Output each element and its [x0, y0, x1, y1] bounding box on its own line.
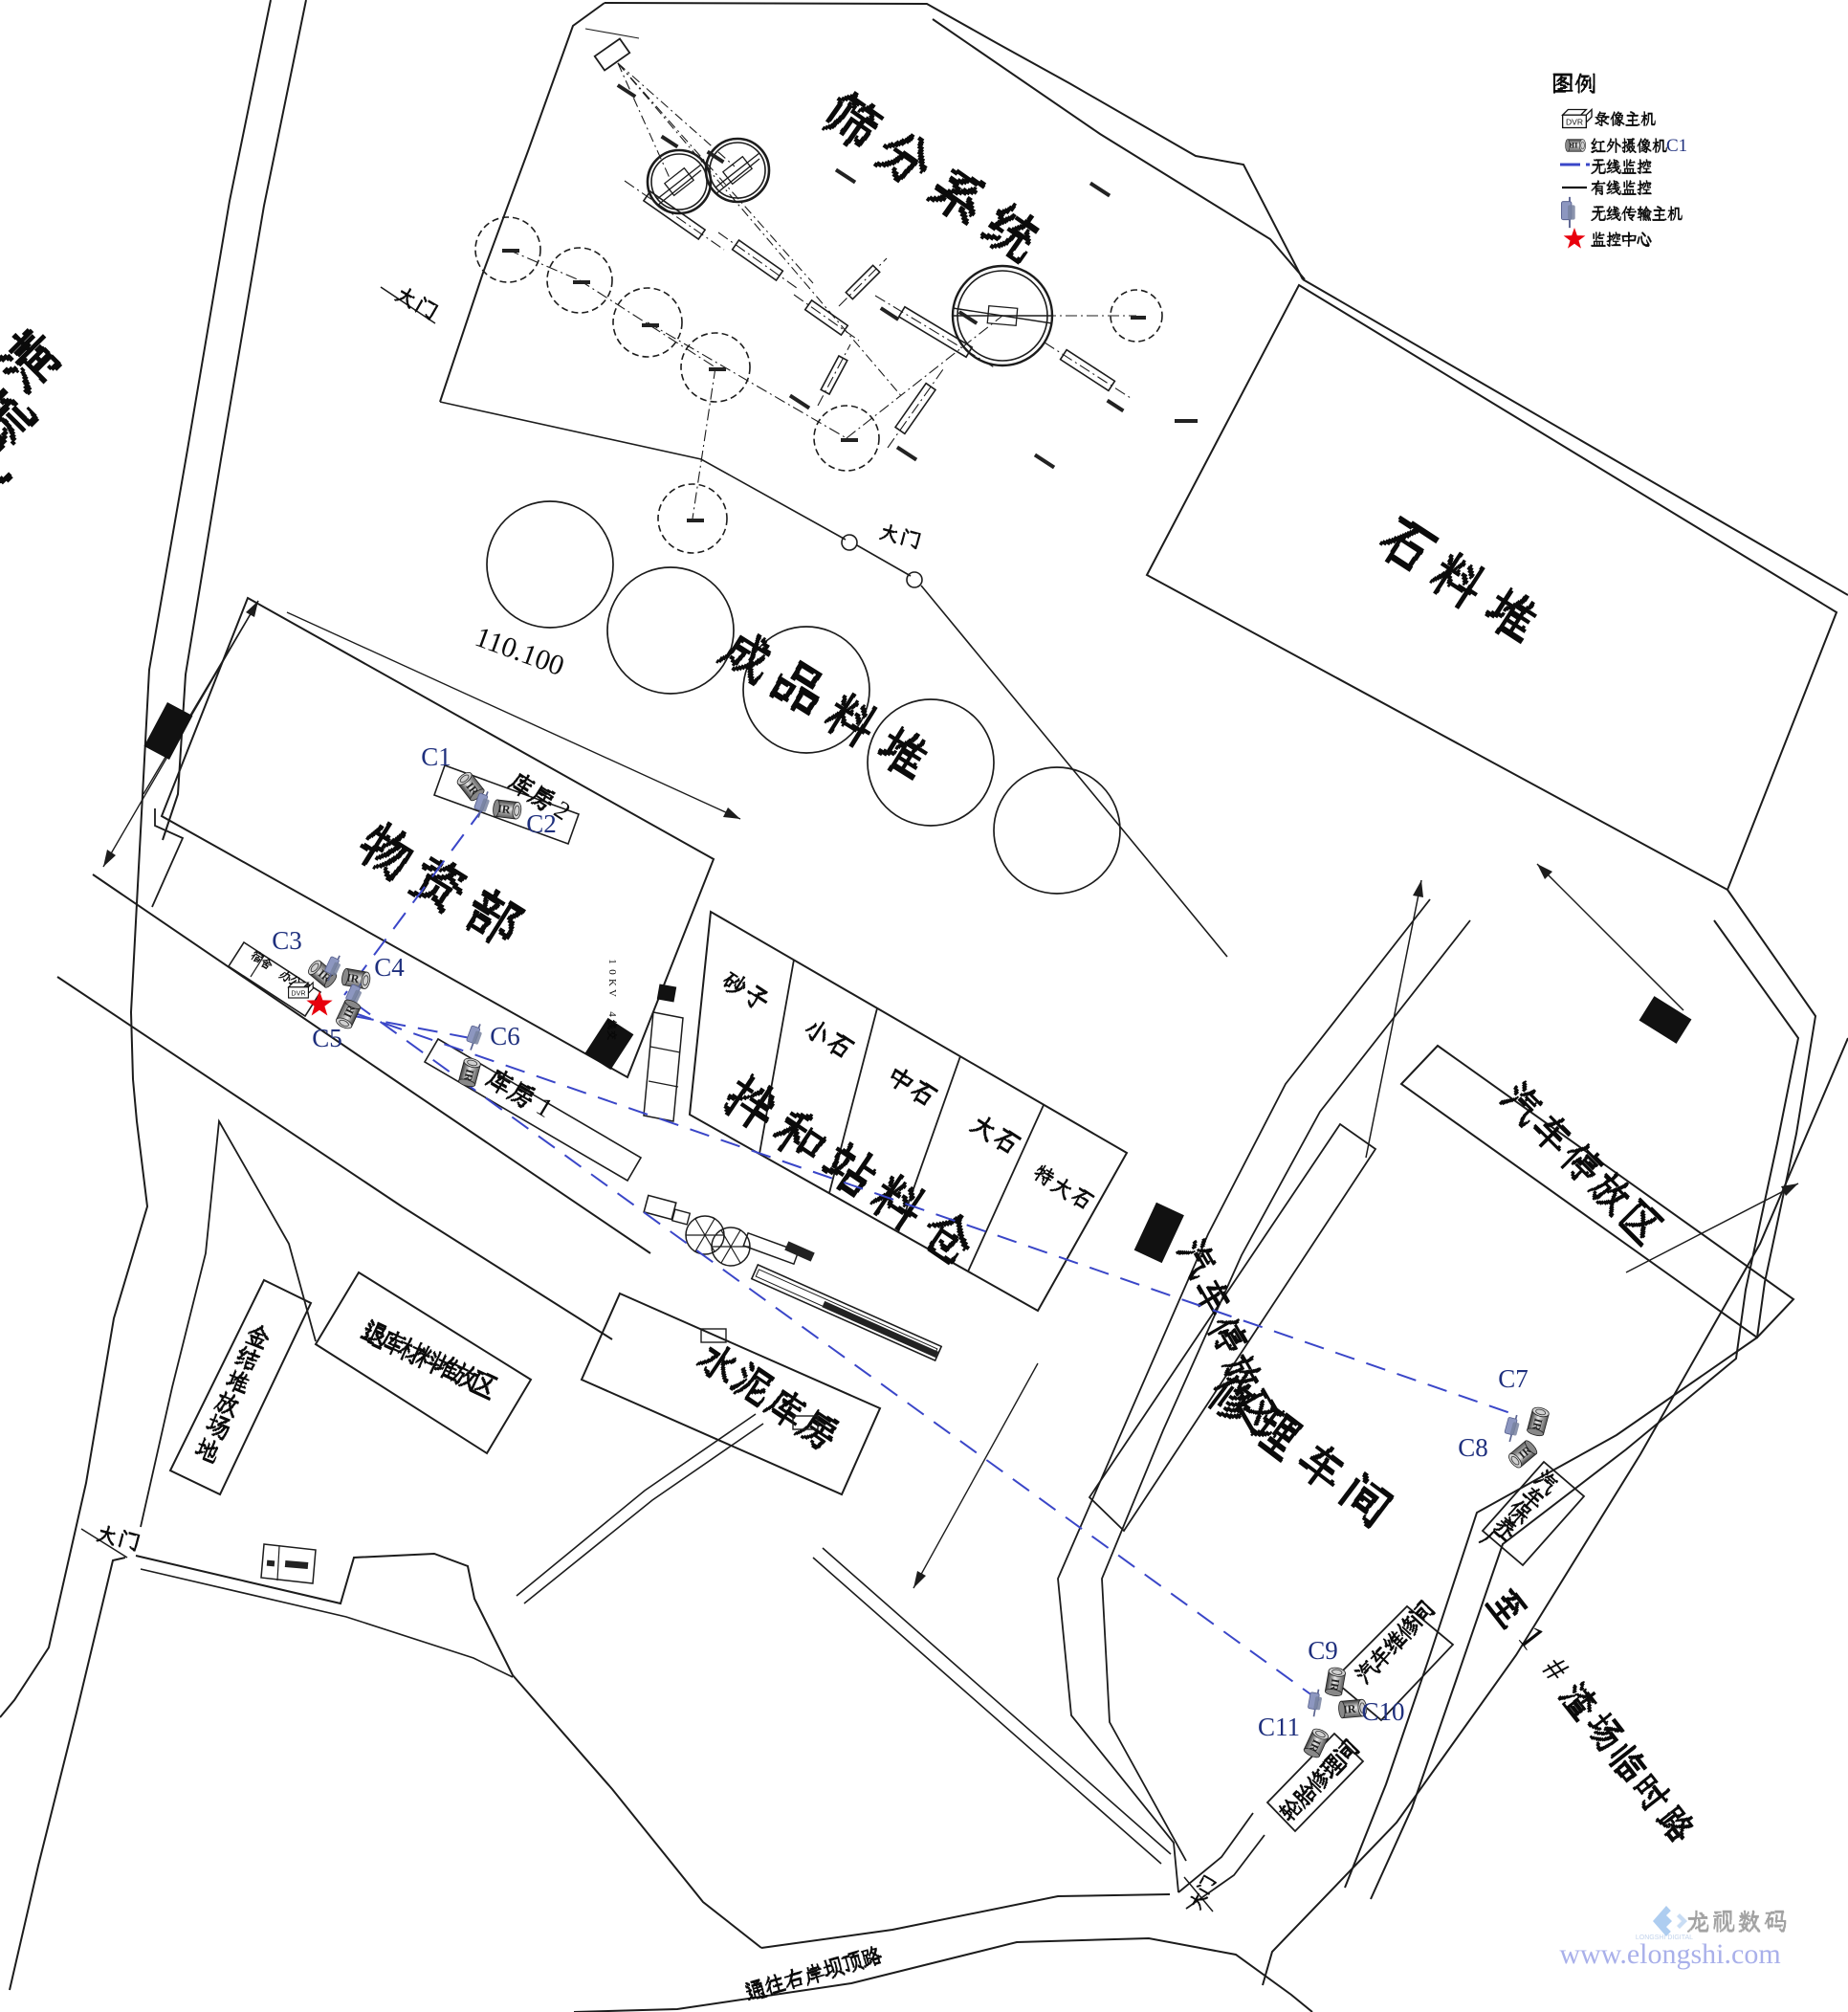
- svg-text:C8: C8: [1458, 1433, 1488, 1462]
- svg-text::: :: [1587, 70, 1593, 94]
- svg-text:C9: C9: [1308, 1636, 1338, 1665]
- svg-text:1: 1: [606, 959, 618, 964]
- svg-text:C1: C1: [1666, 136, 1687, 156]
- svg-text:V: V: [606, 989, 618, 997]
- svg-text:C6: C6: [490, 1022, 520, 1050]
- svg-text:C10: C10: [1361, 1697, 1404, 1726]
- svg-text:C7: C7: [1498, 1364, 1529, 1393]
- svg-text:4: 4: [606, 1011, 618, 1017]
- svg-text:C5: C5: [312, 1024, 342, 1052]
- svg-text:C3: C3: [272, 926, 302, 955]
- svg-text:K: K: [606, 979, 618, 986]
- svg-text:www.elongshi.com: www.elongshi.com: [1559, 1938, 1780, 1970]
- svg-text:C2: C2: [526, 809, 557, 838]
- svg-text:C1: C1: [421, 742, 451, 771]
- svg-text:0: 0: [606, 969, 618, 975]
- svg-text:C11: C11: [1258, 1713, 1300, 1741]
- svg-text:C4: C4: [374, 953, 405, 982]
